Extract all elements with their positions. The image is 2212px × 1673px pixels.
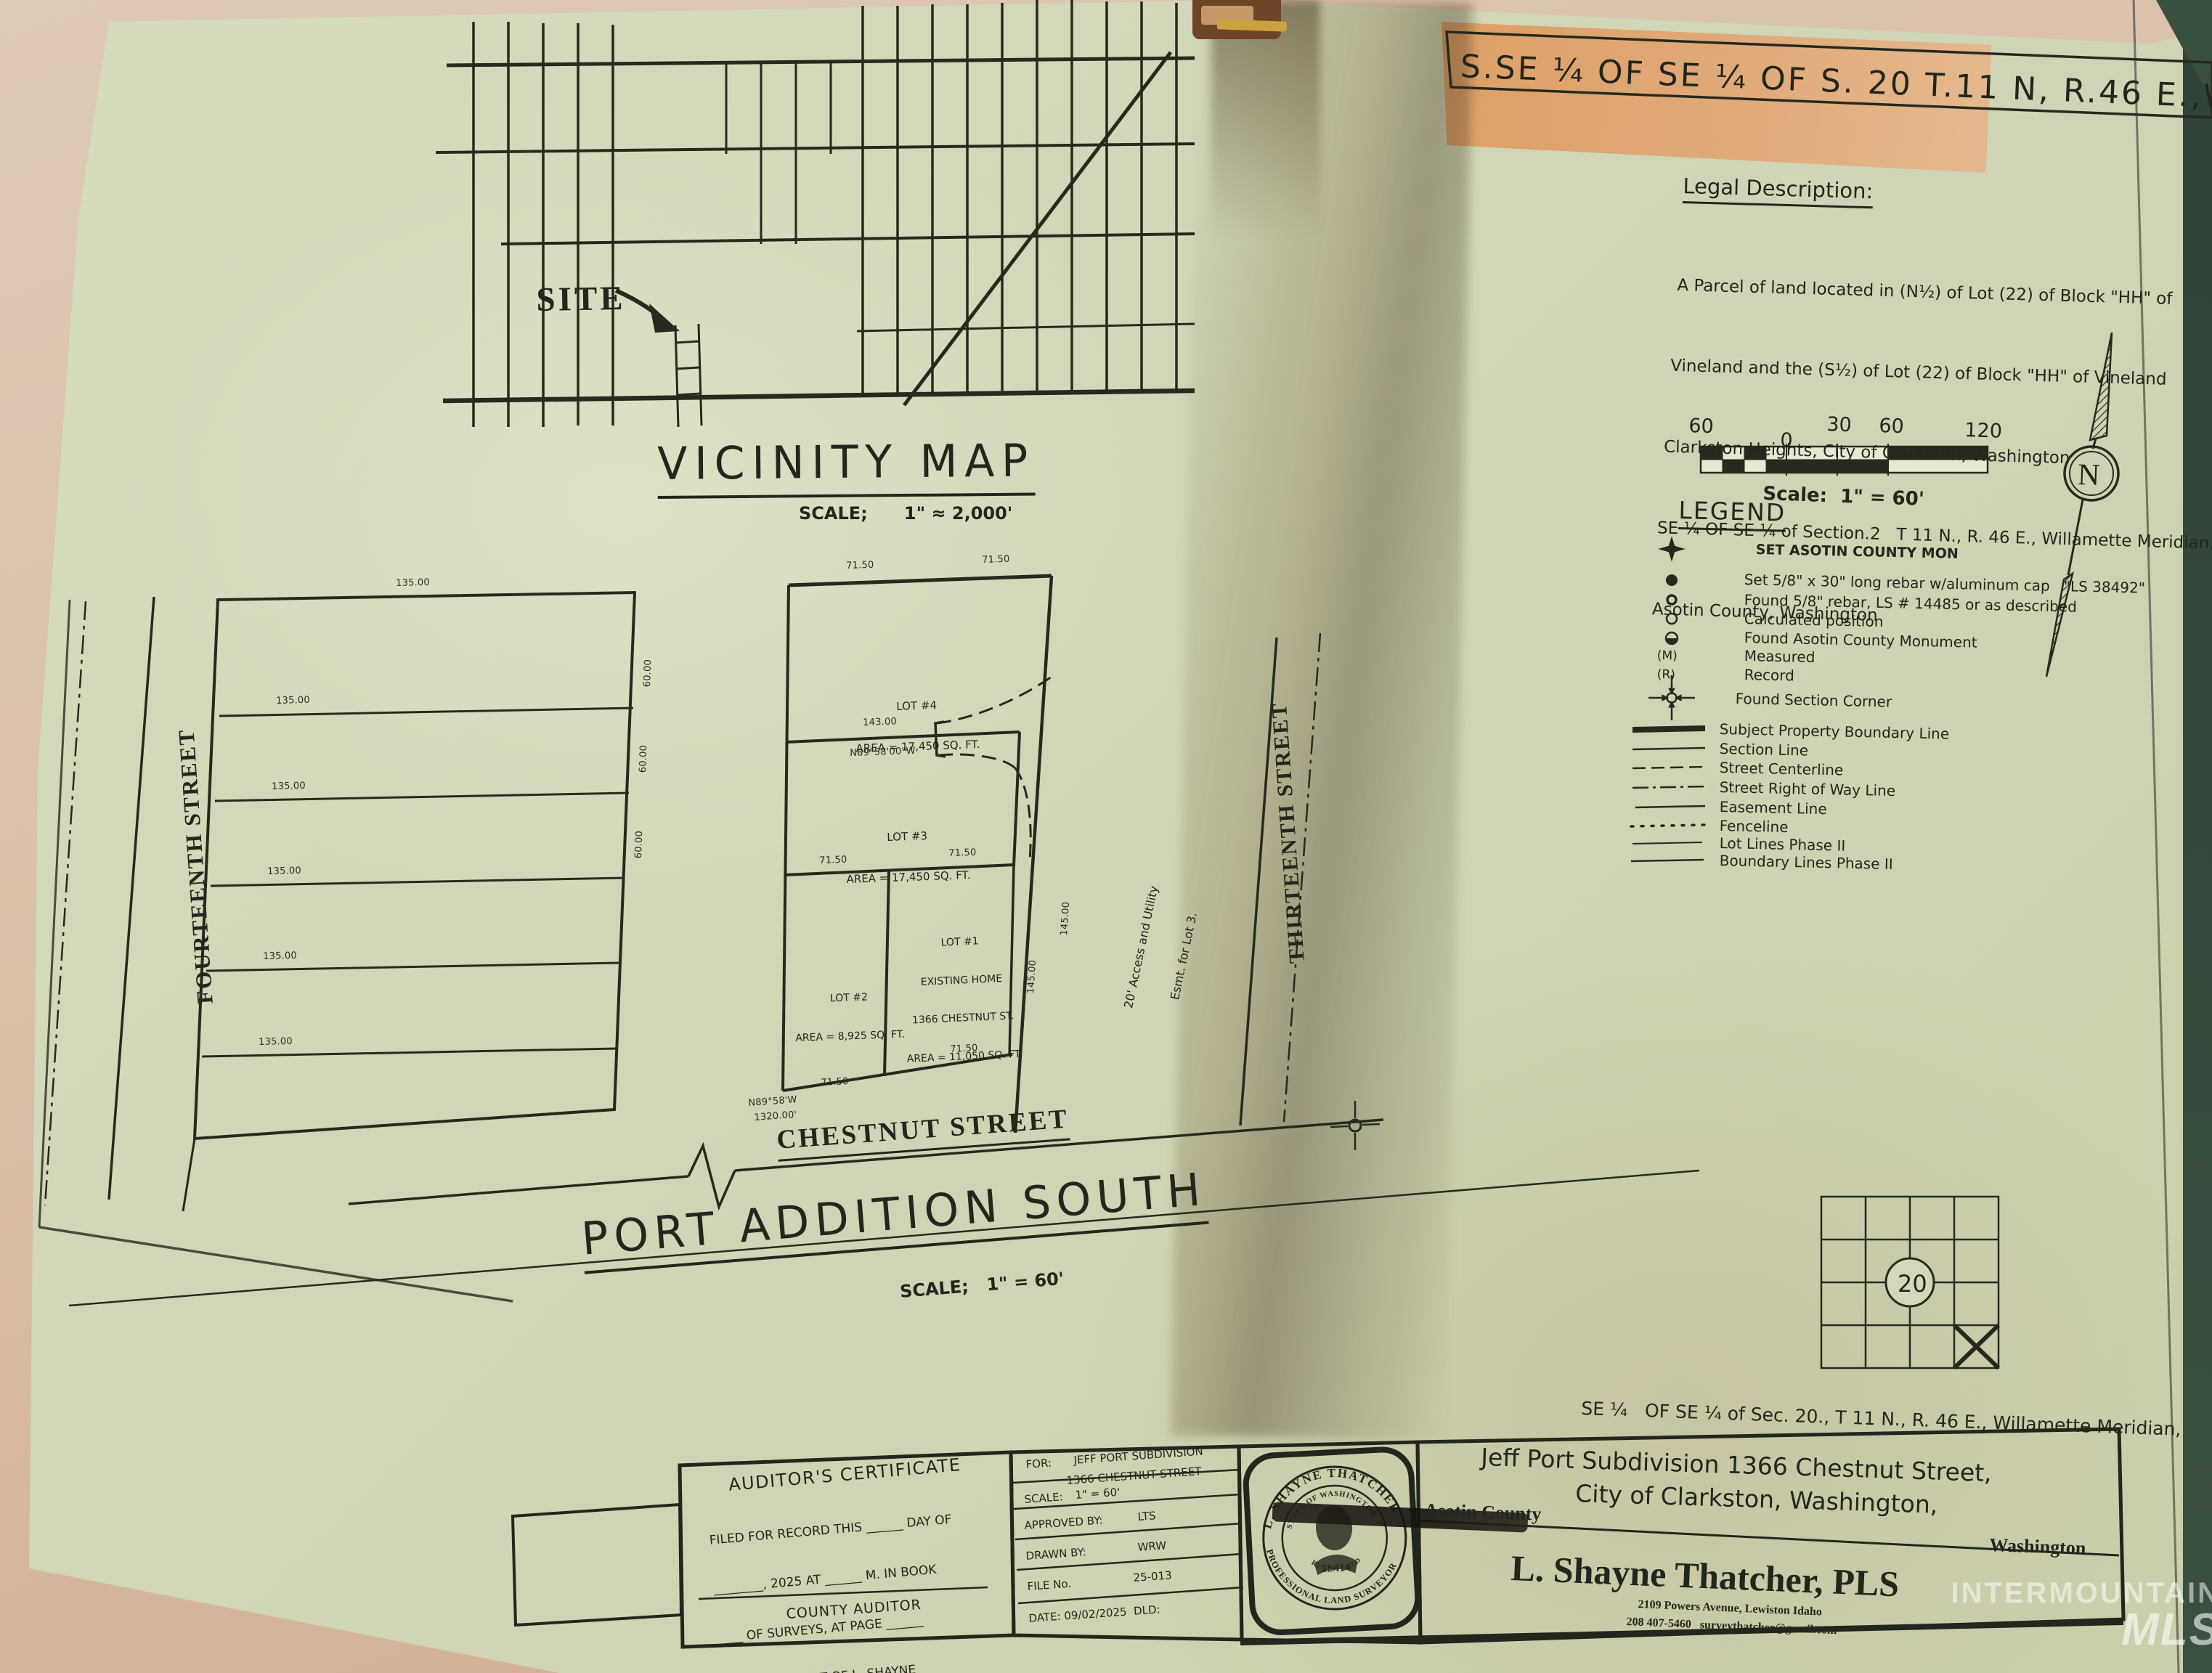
dim-label: 135.00 bbox=[396, 577, 430, 590]
dim-label: 145.00 bbox=[1025, 959, 1039, 994]
dim-label: 135.00 bbox=[263, 951, 297, 963]
scalebar-tick-0: 0 bbox=[1780, 428, 1793, 453]
dim-label: 71.50 bbox=[846, 560, 874, 573]
lot3-name: LOT #3 bbox=[845, 828, 969, 846]
lot1-name: LOT #1 bbox=[902, 934, 1018, 951]
lot3-area: AREA = 17,450 SQ. FT. bbox=[846, 868, 971, 887]
vicinity-map-title: VICINITY MAP bbox=[657, 432, 1035, 498]
legend-item-label: Record bbox=[1744, 666, 1794, 685]
county-label: Asotin County bbox=[1424, 1499, 1542, 1526]
info-for-label: FOR: bbox=[1025, 1457, 1052, 1472]
watermark-line2: MLS bbox=[1951, 1604, 2212, 1656]
divider-dim: 143.00 bbox=[863, 716, 897, 729]
state-label: Washington bbox=[1989, 1534, 2086, 1560]
surveyor-seal: L. SHAYNE THATCHER PROFESSIONAL LAND SUR… bbox=[1240, 1446, 1429, 1657]
vicinity-map-grid bbox=[436, 0, 1195, 427]
lot2-area: AREA = 8,925 SQ. FT. bbox=[795, 1028, 905, 1045]
dim-label: 135.00 bbox=[276, 695, 310, 707]
legend-line-label: Section Line bbox=[1719, 740, 1808, 760]
legend-symbol-M: (M) bbox=[1657, 648, 1678, 664]
lot2-label: LOT #2 AREA = 8,925 SQ. FT. bbox=[793, 965, 906, 1070]
lot1-label: LOT #1 EXISTING HOME 1366 CHESTNUT ST. A… bbox=[900, 908, 1024, 1091]
dim-label: 60.00 bbox=[642, 659, 655, 688]
dim-label: 71.50 bbox=[821, 1076, 849, 1089]
lot1-address: 1366 CHESTNUT ST. bbox=[905, 1010, 1021, 1027]
legend-heading: LEGEND bbox=[1678, 495, 1786, 532]
easement-note-line2: Esmt. for Lot 3. bbox=[1164, 894, 1204, 1019]
easement-note-line1: 20' Access and Utility bbox=[1121, 884, 1161, 1009]
legal-line: A Parcel of land located in (N½) of Lot … bbox=[1677, 272, 2212, 314]
info-approved-value: LTS bbox=[1137, 1509, 1156, 1523]
lot2-name: LOT #2 bbox=[794, 990, 903, 1007]
legend-item-label: Found Section Corner bbox=[1735, 690, 1892, 712]
dim-label: 145.00 bbox=[1059, 901, 1073, 936]
legend-line-label: Boundary Lines Phase II bbox=[1719, 852, 1892, 874]
dim-label: 135.00 bbox=[267, 866, 301, 878]
auditor-line: FILED FOR RECORD THIS ______ DAY OF bbox=[709, 1512, 952, 1550]
legal-description-heading: Legal Description: bbox=[1683, 173, 1874, 209]
dim-label: 71.50 bbox=[982, 554, 1010, 567]
dim-label: 71.50 bbox=[819, 855, 847, 868]
seal-number: 25414 bbox=[1321, 1563, 1351, 1575]
auditor-line: ________, 2025 AT ______ M. IN BOOK bbox=[713, 1560, 956, 1598]
mls-watermark: INTERMOUNTAIN MLS bbox=[1951, 1577, 2212, 1656]
scalebar-tick-60L: 60 bbox=[1688, 414, 1715, 439]
auditor-body: FILED FOR RECORD THIS ______ DAY OF ____… bbox=[706, 1479, 977, 1673]
legend-line-label: Street Centerline bbox=[1719, 759, 1843, 780]
photographed-survey-plat: S.SE ¼ OF SE ¼ OF S. 20 T.11 N, R.46 E.,… bbox=[0, 0, 2212, 1673]
info-file-value: 25-013 bbox=[1133, 1568, 1172, 1584]
dim-label: 135.00 bbox=[272, 781, 306, 793]
scalebar-tick-30: 30 bbox=[1826, 412, 1853, 438]
vicinity-map-scale: SCALE; 1" ≈ 2,000' bbox=[799, 502, 1012, 524]
legal-line: Clarkston Heights, City of Clarkston, Wa… bbox=[1664, 434, 2212, 477]
legal-line: Vineland and the (S½) of Lot (22) of Blo… bbox=[1670, 353, 2212, 395]
dim-label: 135.00 bbox=[259, 1036, 293, 1049]
found-section-corner-symbol bbox=[1330, 1101, 1380, 1150]
legend-line-label: Street Right of Way Line bbox=[1719, 778, 1895, 800]
site-label: SITE bbox=[536, 277, 626, 322]
lot4-name: LOT #4 bbox=[854, 697, 979, 715]
scalebar-tick-60R: 60 bbox=[1879, 414, 1905, 439]
legend-symbol-R: (R) bbox=[1657, 667, 1676, 683]
section-number: 20 bbox=[1898, 1269, 1927, 1298]
dim-label: 71.50 bbox=[948, 847, 977, 860]
divider-bearing: N89°58'00"W bbox=[850, 746, 916, 760]
auditor-line: AT THE REQUEST OF L. SHAYNE bbox=[722, 1658, 965, 1673]
north-arrow-letter: N bbox=[2077, 456, 2100, 495]
dim-label: 60.00 bbox=[638, 745, 651, 773]
info-scale-label: SCALE: bbox=[1024, 1490, 1063, 1506]
legend-line-label: Fenceline bbox=[1719, 817, 1788, 836]
legend-item-label: Calculated position bbox=[1744, 610, 1883, 631]
info-drawn-value: WRW bbox=[1137, 1539, 1167, 1554]
dim-label: 60.00 bbox=[633, 831, 646, 859]
lot1-home: EXISTING HOME bbox=[903, 972, 1020, 989]
dim-label: 71.50 bbox=[950, 1043, 978, 1056]
scalebar-tick-120: 120 bbox=[1964, 418, 2003, 444]
legend-line-samples bbox=[1631, 728, 1707, 861]
legend-item-label: Measured bbox=[1744, 647, 1815, 667]
legend-line-label: Easement Line bbox=[1719, 798, 1826, 818]
